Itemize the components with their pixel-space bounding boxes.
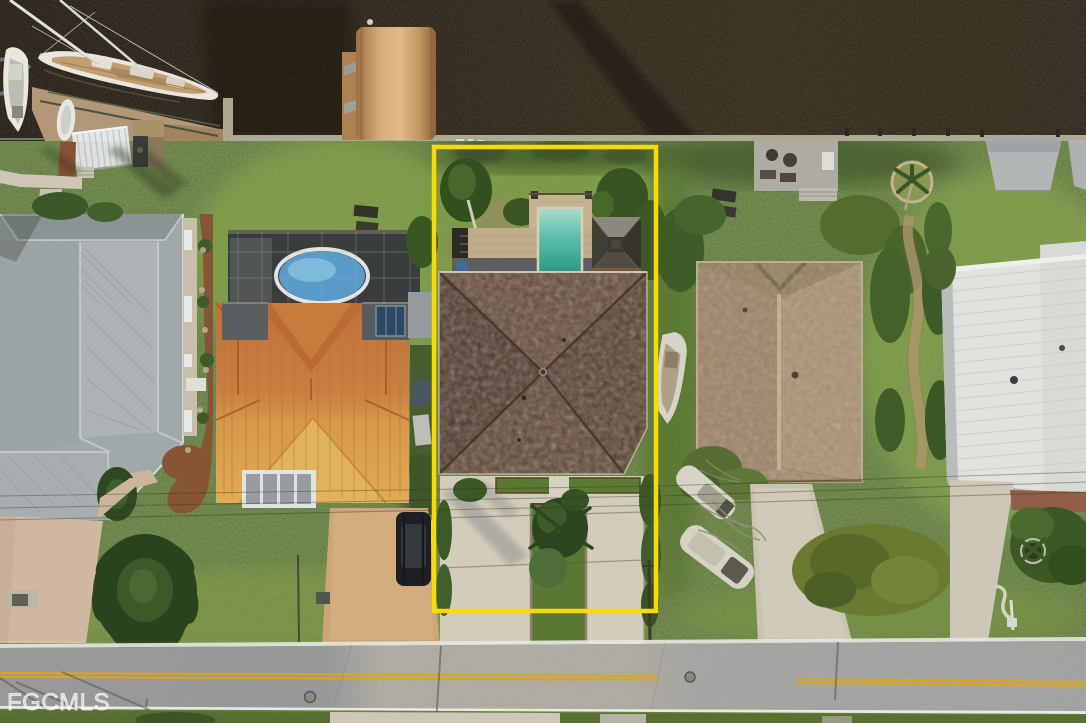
svg-text:FGCMLS: FGCMLS: [7, 689, 110, 716]
